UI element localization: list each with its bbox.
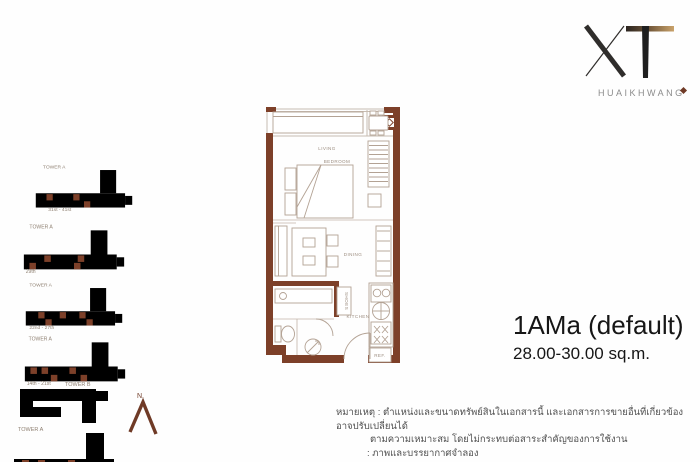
unit-type-title: 1AMa (default) [513,310,684,341]
room-label-kitchen: KITCHEN [347,314,370,319]
nightstand [368,194,381,207]
tower-a-label: TOWER A [18,427,44,433]
keyplan-31st-41st: TOWER A 31st - 41st [32,162,136,212]
dining-table [292,228,338,276]
floors-label: 29th [26,269,36,274]
logo-xt-mark [586,26,674,78]
room-label-dining: DINING [344,252,363,257]
vanity [275,289,332,303]
project-logo: HUAIKHWANG [578,22,696,106]
tower-label: TOWER A [29,337,53,343]
toilet [275,326,295,342]
tv-console [376,226,391,276]
logo-subtitle: HUAIKHWANG [598,88,685,98]
keyplan-site-towers: TOWER B TOWER A [10,378,140,462]
label-ref: REF. [374,353,386,358]
label-shoes: SHOES [344,292,349,310]
wardrobe [368,141,389,187]
shoes-cabinet: SHOES [337,287,351,315]
north-arrow-icon [130,402,156,434]
room-label-bedroom: BEDROOM [324,159,351,164]
keyplan-29th: TOWER A 29th [12,222,136,274]
tower-label: TOWER A [29,282,52,288]
balcony-table-set [369,111,388,135]
remark-line-3: : ภาพและบรรยากาศจำลอง [336,447,698,461]
bathroom-door-arc [316,319,333,336]
keyplan-22nd-27th: TOWER A 22nd - 27th [10,280,138,330]
tower-b-label: TOWER B [65,382,91,388]
room-label-living: LIVING [318,146,335,151]
remark-block: หมายเหตุ : ตำแหน่งและขนาดทรัพย์สินในเอกส… [336,406,698,462]
tower-label: TOWER A [29,225,53,231]
shower [297,319,321,355]
unit-info: 1AMa (default) 28.00-30.00 sq.m. [513,310,684,364]
tower-label: TOWER A [43,164,66,170]
remark-line-2: ตามความเหมาะสม โดยไม่กระทบต่อสาระสำคัญขอ… [336,433,698,447]
bench [275,226,287,276]
kitchen-counter [369,283,393,347]
floors-label: 22nd - 27th [29,325,54,330]
brochure-page: TOWER A 31st - 41st TOWER A 29th TOWER A [0,0,700,462]
unit-floorplan: LIVING BEDROOM DINING [266,107,400,366]
north-indicator: N. [122,388,166,436]
remark-line-1: หมายเหตุ : ตำแหน่งและขนาดทรัพย์สินในเอกส… [336,406,698,433]
sofa [273,112,363,133]
unit-area: 28.00-30.00 sq.m. [513,344,684,364]
floors-label: 31st - 41st [48,207,72,212]
entry-door [344,333,370,359]
refrigerator: REF. [369,348,391,362]
bed [285,165,353,218]
